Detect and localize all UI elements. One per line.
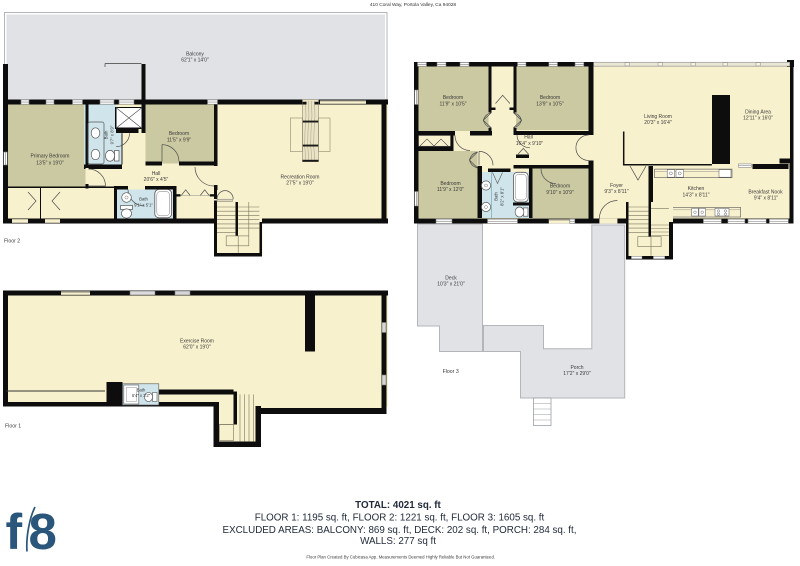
svg-text:Bath: Bath <box>137 387 146 392</box>
svg-text:Porch: Porch <box>570 365 583 371</box>
svg-text:11'9" x 10'5": 11'9" x 10'5" <box>439 102 466 108</box>
svg-text:9'1" x 5'1": 9'1" x 5'1" <box>134 202 153 207</box>
svg-text:9'10" x 10'9": 9'10" x 10'9" <box>546 190 574 196</box>
svg-text:Floor 3: Floor 3 <box>443 369 459 375</box>
svg-text:13'9" x 10'5": 13'9" x 10'5" <box>536 102 564 108</box>
svg-text:WALLS: 277 sq ft: WALLS: 277 sq ft <box>360 536 436 547</box>
svg-text:16'4" x 9'10": 16'4" x 9'10" <box>516 141 544 147</box>
svg-text:Exercise Room: Exercise Room <box>180 338 214 344</box>
svg-text:Hall: Hall <box>524 135 533 141</box>
svg-text:17'2" x 29'0": 17'2" x 29'0" <box>563 371 591 377</box>
svg-text:TOTAL: 4021 sq. ft: TOTAL: 4021 sq. ft <box>355 500 441 511</box>
svg-text:9'3" x 8'11": 9'3" x 8'11" <box>604 189 628 195</box>
svg-text:Hall: Hall <box>152 171 161 177</box>
svg-text:6'4" x 3'2": 6'4" x 3'2" <box>132 393 151 398</box>
svg-text:Primary Bedroom: Primary Bedroom <box>31 153 70 159</box>
svg-text:Recreation Room: Recreation Room <box>281 174 320 180</box>
svg-text:Bedroom: Bedroom <box>440 181 460 187</box>
svg-text:Floor 1: Floor 1 <box>5 423 21 429</box>
svg-text:Bedroom: Bedroom <box>550 184 570 190</box>
svg-text:Floor 2: Floor 2 <box>4 238 20 244</box>
svg-text:Living Room: Living Room <box>644 114 672 120</box>
svg-text:Bedroom: Bedroom <box>540 95 560 101</box>
svg-text:f: f <box>6 504 23 560</box>
svg-text:62'1" x 14'0": 62'1" x 14'0" <box>181 58 209 64</box>
svg-text:8'2" x 8'1": 8'2" x 8'1" <box>500 187 505 206</box>
svg-text:410 Coral Way, Portola Valley,: 410 Coral Way, Portola Valley, Ca 94028 <box>370 2 457 8</box>
svg-text:Floor Plan Created By Cubicasa: Floor Plan Created By Cubicasa App. Meas… <box>306 555 495 560</box>
svg-text:Bedroom: Bedroom <box>443 95 463 101</box>
svg-text:Bedroom: Bedroom <box>169 131 189 137</box>
svg-text:13'5" x 19'0": 13'5" x 19'0" <box>36 161 64 167</box>
svg-text:27'5" x 19'0": 27'5" x 19'0" <box>286 181 314 187</box>
svg-text:62'0" x 19'0": 62'0" x 19'0" <box>183 345 211 351</box>
svg-text:12'11" x 16'0": 12'11" x 16'0" <box>743 116 773 122</box>
svg-text:9'7" x 8'9": 9'7" x 8'9" <box>110 125 115 144</box>
svg-text:20'6" x 4'5": 20'6" x 4'5" <box>144 177 169 183</box>
svg-text:Balcony: Balcony <box>186 51 204 57</box>
svg-text:Kitchen: Kitchen <box>688 186 705 192</box>
svg-text:10'3" x 21'0": 10'3" x 21'0" <box>437 282 465 288</box>
svg-text:Foyer: Foyer <box>610 183 623 189</box>
svg-text:11'9" x 12'0": 11'9" x 12'0" <box>437 187 464 193</box>
svg-text:EXCLUDED AREAS: BALCONY: 869 s: EXCLUDED AREAS: BALCONY: 869 sq. ft, DEC… <box>223 525 577 536</box>
svg-text:FLOOR 1: 1195 sq. ft, FLOOR 2:: FLOOR 1: 1195 sq. ft, FLOOR 2: 1221 sq. … <box>255 512 545 523</box>
svg-text:20'3" x 16'4": 20'3" x 16'4" <box>644 120 672 126</box>
svg-text:Bath: Bath <box>494 191 499 200</box>
svg-text:Bath: Bath <box>139 196 148 201</box>
svg-text:Deck: Deck <box>445 275 457 281</box>
svg-text:Bath: Bath <box>104 130 109 139</box>
svg-text:11'5" x 9'9": 11'5" x 9'9" <box>167 138 191 144</box>
svg-text:Breakfast Nook: Breakfast Nook <box>748 189 783 195</box>
svg-text:9'4" x 8'11": 9'4" x 8'11" <box>754 196 778 202</box>
svg-text:14'3" x 8'11": 14'3" x 8'11" <box>682 193 709 199</box>
svg-text:Dining Area: Dining Area <box>745 109 771 115</box>
